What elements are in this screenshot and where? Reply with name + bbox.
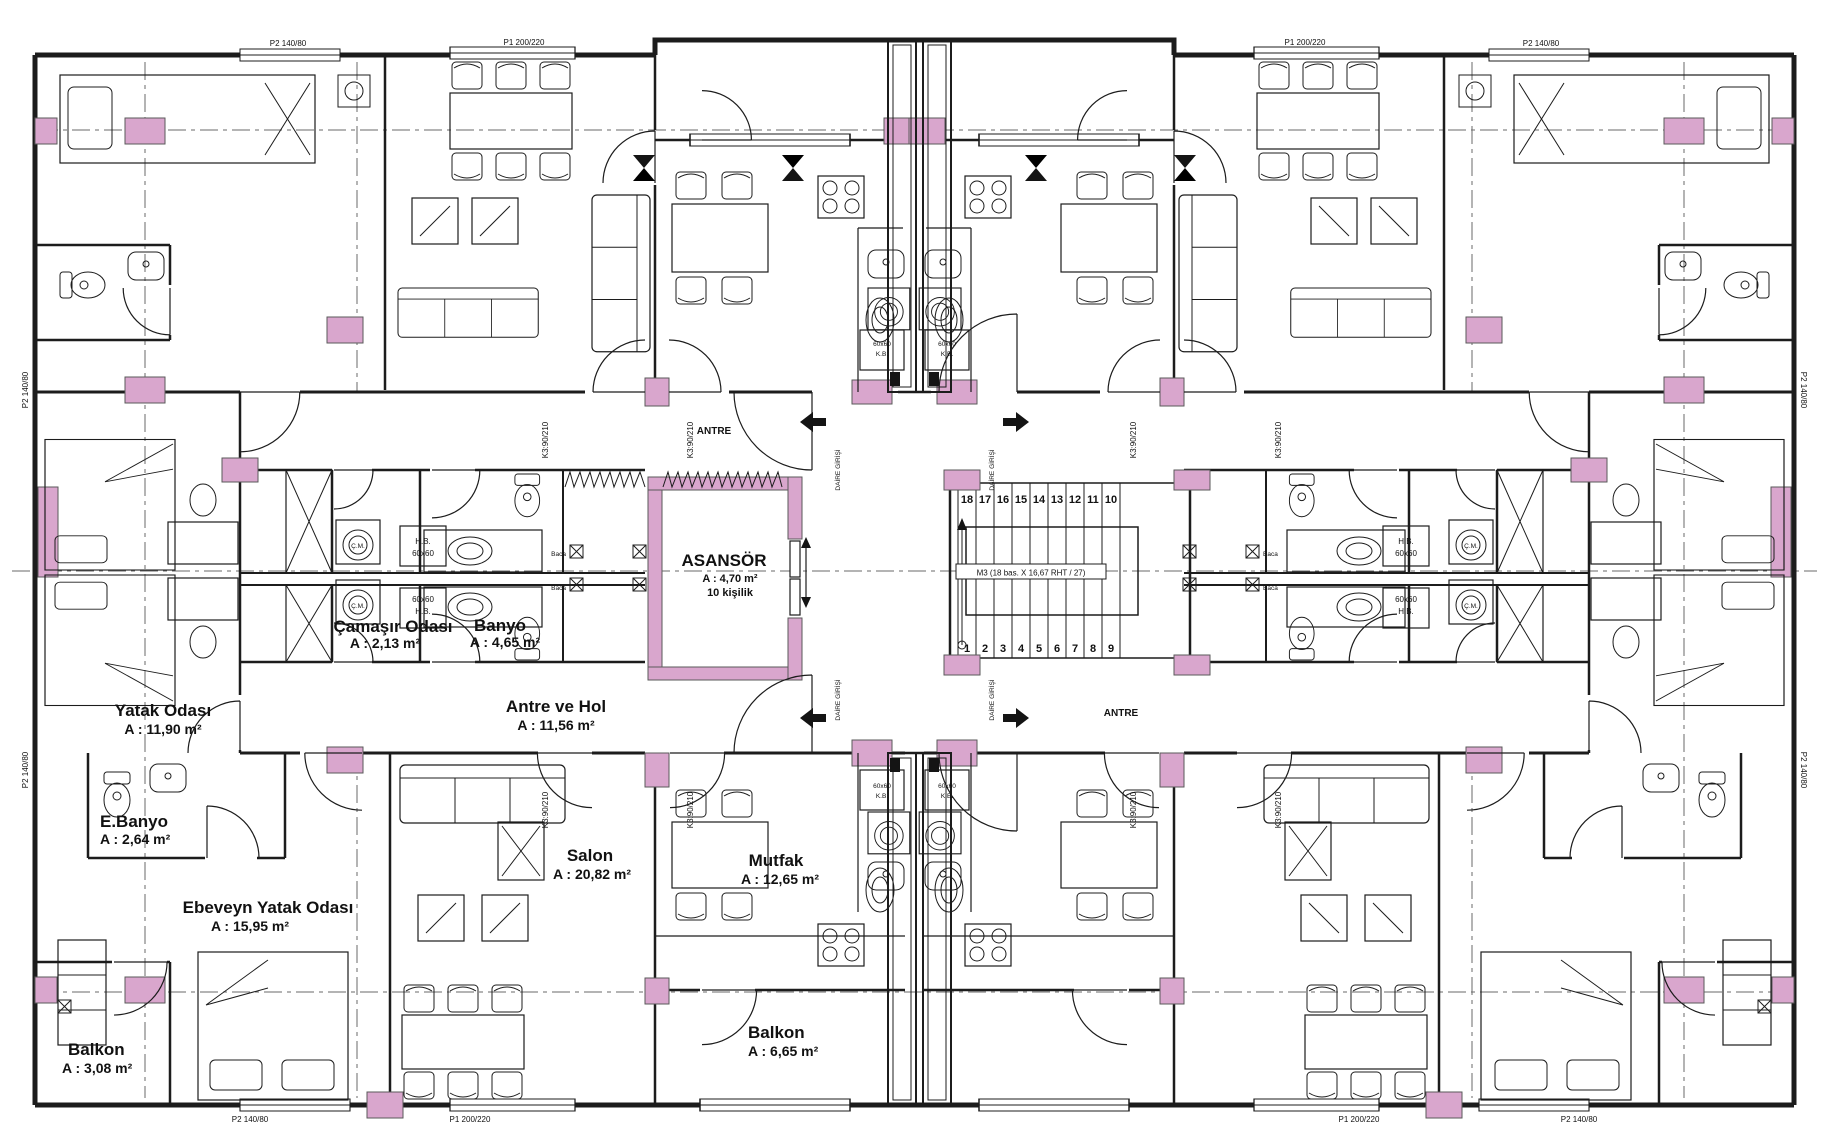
washer-tag: Ç.M.: [1464, 543, 1478, 550]
label-camasir-area: A : 2,13 m²: [350, 635, 421, 651]
stair-num: 10: [1105, 494, 1117, 506]
stair-num: 3: [1000, 643, 1006, 655]
window-tag: P2 140/80: [1799, 752, 1808, 789]
window-tag: P2 140/80: [232, 1115, 269, 1124]
window-tag: P2 140/80: [21, 751, 30, 788]
stair-num: 12: [1069, 494, 1081, 506]
window-tag: P2 140/80: [1523, 39, 1560, 48]
stair-run-label: M3 (18 bas. X 16,67 RHT / 27): [977, 569, 1086, 578]
label-mutfak-area: A : 12,65 m²: [741, 871, 819, 887]
stair-num: 17: [979, 494, 991, 506]
duct-shafts: [888, 40, 951, 1105]
kb-tag: K.B.: [876, 351, 888, 358]
cabinet-tag: H.B.: [1398, 607, 1414, 616]
stair-num: 16: [997, 494, 1009, 506]
window-tag: P1 200/220: [450, 1115, 491, 1124]
label-salon-area: A : 20,82 m²: [553, 866, 631, 882]
label-yatak-odasi-area: A : 11,90 m²: [124, 721, 202, 737]
stair-num: 15: [1015, 494, 1027, 506]
stair-num: 13: [1051, 494, 1063, 506]
label-balkon-kose-area: A : 3,08 m²: [62, 1060, 133, 1076]
baca-tag: Baca: [551, 585, 566, 592]
stair-num: 8: [1090, 643, 1096, 655]
axis-lines: [12, 62, 1817, 1098]
label-yatak-odasi: Yatak Odası: [115, 701, 211, 720]
stair-num: 5: [1036, 643, 1042, 655]
window-tag: P1 200/220: [504, 38, 545, 47]
stair-numbers-lower: 1 2 3 4 5 6 7 8 9: [964, 643, 1114, 655]
window-tag: P1 200/220: [1339, 1115, 1380, 1124]
label-ebeveyn-area: A : 15,95 m²: [211, 918, 289, 934]
stair-num: 6: [1054, 643, 1060, 655]
entry-tag: DAİRE GİRİŞİ: [833, 449, 842, 490]
label-balkon-kose: Balkon: [68, 1040, 125, 1059]
entry-tag: DAİRE GİRİŞİ: [987, 679, 996, 720]
door-window-tags: K3:90/210 K3:90/210 K3:90/210 K3:90/210 …: [21, 38, 1808, 1124]
baca-tag: Baca: [551, 551, 566, 558]
washer-tag: Ç.M.: [351, 543, 365, 550]
door-tag: K3:90/210: [1274, 791, 1283, 828]
cabinet-tag: H.B.: [415, 607, 431, 616]
labels: Yatak Odası A : 11,90 m² Çamaşır Odası A…: [21, 38, 1808, 1124]
cabinet-tag: H.B.: [415, 537, 431, 546]
floor-plan-sheet: Yatak Odası A : 11,90 m² Çamaşır Odası A…: [0, 0, 1829, 1142]
label-e-banyo: E.Banyo: [100, 812, 168, 831]
label-camasir: Çamaşır Odası: [333, 617, 452, 636]
label-ebeveyn: Ebeveyn Yatak Odası: [183, 898, 354, 917]
door-tag: K3:90/210: [1129, 791, 1138, 828]
top-unit-walls: [35, 55, 905, 470]
label-balkon-orta: Balkon: [748, 1023, 805, 1042]
central-core: [565, 40, 1210, 1105]
window-tag: P2 140/80: [21, 371, 30, 408]
window-tag: P2 140/80: [1799, 372, 1808, 409]
door-tag: K3:90/210: [541, 421, 550, 458]
kb-tag: 60x60: [873, 783, 891, 790]
section-marks: [633, 155, 804, 181]
label-asansor: ASANSÖR: [681, 551, 766, 570]
ebeveyn-furniture: [58, 940, 348, 1100]
kb-tag: 60x60: [873, 341, 891, 348]
label-banyo: Banyo: [474, 616, 526, 635]
label-balkon-orta-area: A : 6,65 m²: [748, 1043, 819, 1059]
kb-tag: K.B.: [876, 793, 888, 800]
salon-top-furniture: [398, 62, 655, 352]
window-tag: P2 140/80: [270, 39, 307, 48]
door-tag: K3:90/210: [686, 421, 695, 458]
kb-tag: K.B.: [941, 793, 953, 800]
entry-tag: DAİRE GİRİŞİ: [833, 679, 842, 720]
label-antre-top: ANTRE: [697, 426, 732, 437]
stair-num: 14: [1033, 494, 1046, 506]
cabinet-tag: 60x60: [1395, 595, 1417, 604]
stair-num: 7: [1072, 643, 1078, 655]
stair-numbers-upper: 18 17 16 15 14 13 12 11 10: [961, 494, 1117, 506]
baca-tag: Baca: [1263, 585, 1278, 592]
label-banyo-area: A : 4,65 m²: [470, 634, 541, 650]
cabinet-tag: 60x60: [412, 549, 434, 558]
label-asansor-area: A : 4,70 m²: [702, 573, 758, 585]
washer-tag: Ç.M.: [351, 603, 365, 610]
door-tag: K3:90/210: [1274, 421, 1283, 458]
kitchen-top-furniture: [593, 91, 910, 392]
washer-tag: Ç.M.: [1464, 603, 1478, 610]
stair-num: 4: [1018, 643, 1025, 655]
entry-tag: DAİRE GİRİŞİ: [987, 449, 996, 490]
kb-tag: 60x60: [938, 783, 956, 790]
stair-num: 18: [961, 494, 973, 506]
stair-num: 9: [1108, 643, 1114, 655]
floor-plan: Yatak Odası A : 11,90 m² Çamaşır Odası A…: [0, 0, 1829, 1142]
wardrobes: [286, 470, 332, 662]
label-asansor-capacity: 10 kişilik: [707, 587, 754, 599]
kb-tag: 60x60: [938, 341, 956, 348]
door-tag: K3:90/210: [1129, 421, 1138, 458]
cabinet-tag: 60x60: [1395, 549, 1417, 558]
label-e-banyo-area: A : 2,64 m²: [100, 831, 171, 847]
window-tag: P2 140/80: [1561, 1115, 1598, 1124]
apartment-half-geometry: [35, 40, 920, 1118]
label-antre-ve-hol: Antre ve Hol: [506, 697, 606, 716]
kb-tag: K.B.: [941, 351, 953, 358]
stair-num: 11: [1087, 494, 1099, 506]
label-salon: Salon: [567, 846, 613, 865]
label-antre-right: ANTRE: [1104, 708, 1139, 719]
label-antre-ve-hol-area: A : 11,56 m²: [517, 717, 595, 733]
cabinet-tag: 60x60: [412, 595, 434, 604]
window-tag: P1 200/220: [1285, 38, 1326, 47]
label-mutfak: Mutfak: [749, 851, 804, 870]
stair-num: 1: [964, 643, 970, 655]
stair-num: 2: [982, 643, 988, 655]
bedroom-top-furniture: [60, 75, 370, 452]
door-tag: K3:90/210: [686, 791, 695, 828]
door-tag: K3:90/210: [541, 791, 550, 828]
baca-tag: Baca: [1263, 551, 1278, 558]
cabinet-tag: H.B.: [1398, 537, 1414, 546]
